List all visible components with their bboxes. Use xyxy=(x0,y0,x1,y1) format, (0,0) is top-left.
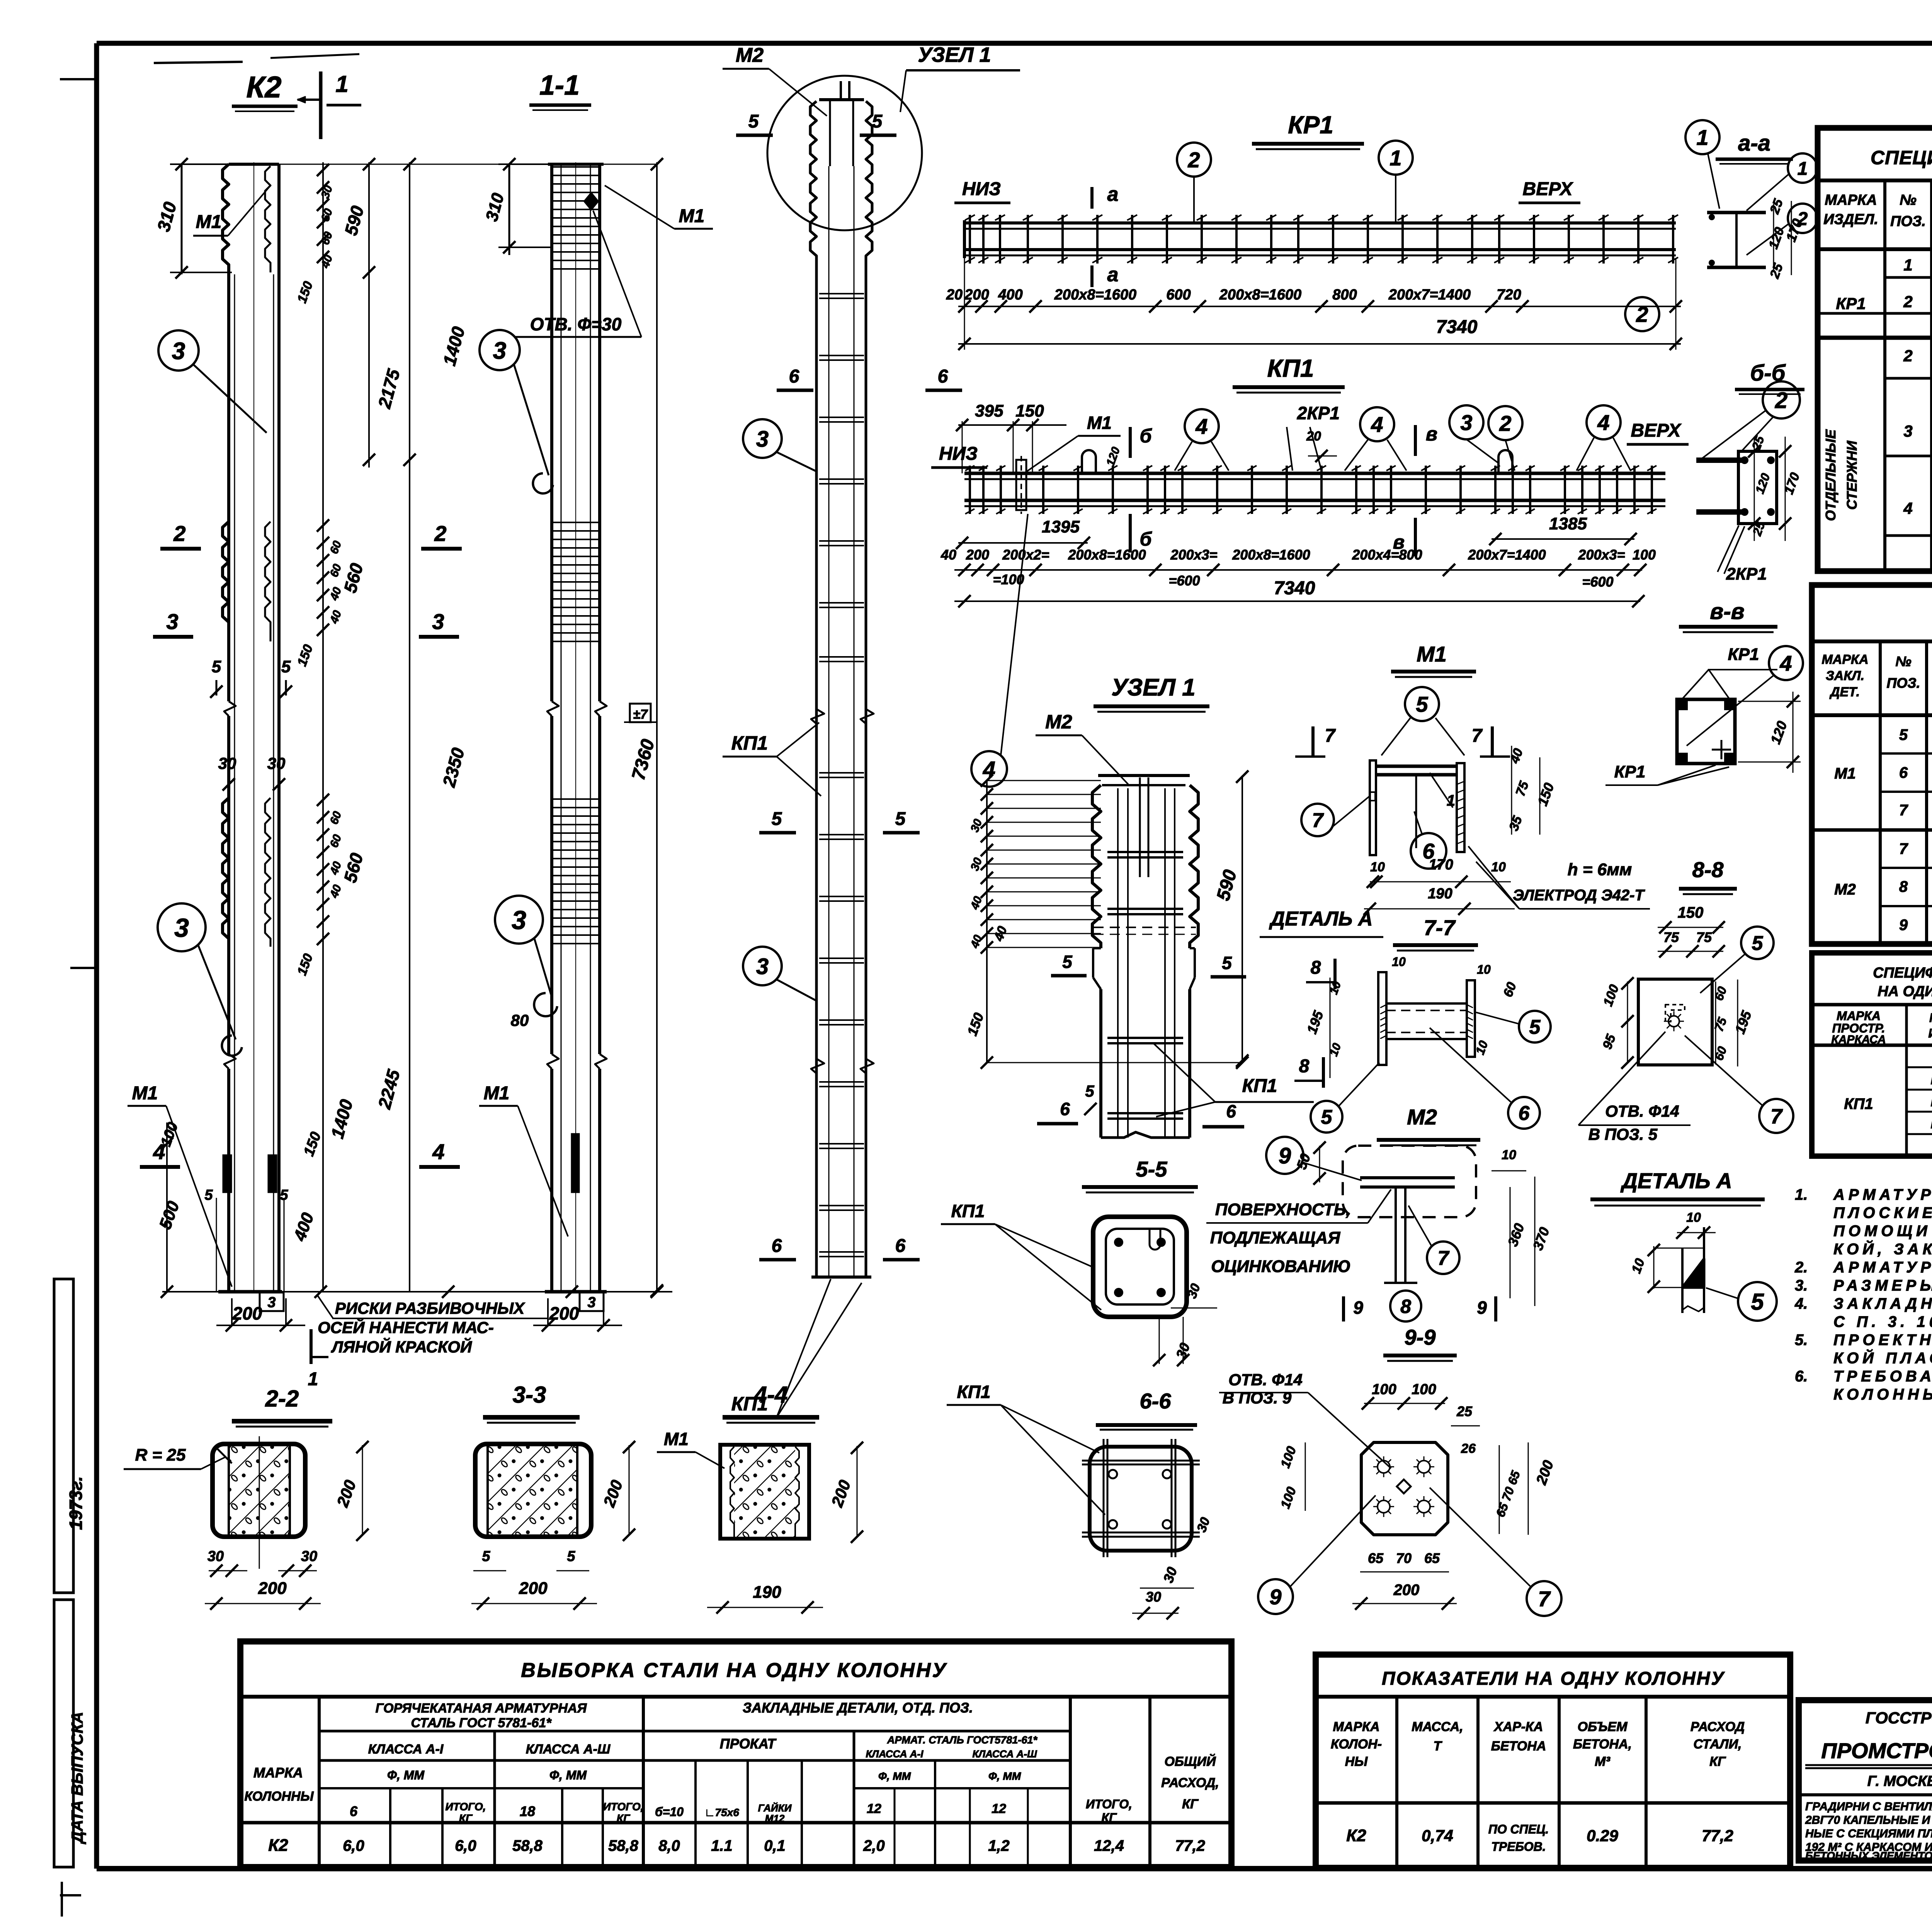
svg-text:=600: =600 xyxy=(1582,574,1613,590)
svg-text:4: 4 xyxy=(1779,651,1792,675)
svg-text:6: 6 xyxy=(772,1236,782,1256)
svg-text:МАРКА: МАРКА xyxy=(1929,1011,1932,1025)
svg-text:4: 4 xyxy=(1371,412,1383,437)
svg-text:3.: 3. xyxy=(1795,1277,1808,1294)
svg-text:СТАЛЬ ГОСТ 5781-61*: СТАЛЬ ГОСТ 5781-61* xyxy=(411,1716,552,1730)
svg-text:ПРОЕКТНУЮ ТОЛЩИНУ ЗАЩИТНЫХ СЛО: ПРОЕКТНУЮ ТОЛЩИНУ ЗАЩИТНЫХ СЛОЕВ БЕТОНА … xyxy=(1833,1332,1932,1349)
svg-text:3: 3 xyxy=(756,954,769,979)
svg-text:3-3: 3-3 xyxy=(513,1382,546,1408)
svg-text:М1: М1 xyxy=(1834,765,1856,782)
svg-text:КР1: КР1 xyxy=(1288,111,1333,139)
svg-text:НА ОДИН ПРОСТРАНСТВЕННЫЙ КАРКА: НА ОДИН ПРОСТРАНСТВЕННЫЙ КАРКАС xyxy=(1878,982,1932,1000)
svg-text:5: 5 xyxy=(1321,1106,1333,1129)
svg-text:6: 6 xyxy=(938,366,948,387)
svg-text:С П. 3. 10 ПОЯСНИТЕЛЬНОЙ ЗАПИС: С П. 3. 10 ПОЯСНИТЕЛЬНОЙ ЗАПИСКИ. xyxy=(1833,1312,1932,1330)
svg-text:МАРКА: МАРКА xyxy=(1825,192,1877,208)
svg-text:ВЫБОРКА СТАЛИ НА ОДНУ КОЛОННУ: ВЫБОРКА СТАЛИ НА ОДНУ КОЛОННУ xyxy=(521,1659,947,1682)
svg-text:ПОЗ.: ПОЗ. xyxy=(1890,213,1926,230)
svg-text:8: 8 xyxy=(1899,878,1908,895)
svg-text:8: 8 xyxy=(1400,1296,1411,1317)
svg-text:3: 3 xyxy=(432,609,444,634)
svg-text:77,2: 77,2 xyxy=(1175,1837,1205,1854)
svg-text:Ф, ММ: Ф, ММ xyxy=(549,1768,587,1782)
svg-text:АРМАТ. СТАЛЬ ГОСТ5781-61*: АРМАТ. СТАЛЬ ГОСТ5781-61* xyxy=(887,1734,1037,1746)
svg-text:М1: М1 xyxy=(196,212,222,232)
svg-text:КП1: КП1 xyxy=(1844,1095,1873,1112)
svg-text:ПО СПЕЦ.: ПО СПЕЦ. xyxy=(1488,1822,1549,1836)
svg-text:БЕТОННЫХ ЭЛЕМЕНТОВ: БЕТОННЫХ ЭЛЕМЕНТОВ xyxy=(1805,1850,1932,1862)
svg-text:1,2: 1,2 xyxy=(988,1837,1010,1854)
svg-text:6: 6 xyxy=(1519,1102,1530,1125)
svg-text:7-7: 7-7 xyxy=(1424,915,1456,940)
svg-text:9: 9 xyxy=(1269,1585,1281,1609)
svg-text:ПОВЕРХНОСТЬ,: ПОВЕРХНОСТЬ, xyxy=(1215,1200,1350,1219)
svg-text:ПЛОСКИЕ КАРКАСЫ-ТОЧЕЧНОЙ СВАРК: ПЛОСКИЕ КАРКАСЫ-ТОЧЕЧНОЙ СВАРКОЙ, ПРОСТР… xyxy=(1833,1203,1932,1221)
svg-text:7: 7 xyxy=(1325,726,1336,746)
svg-text:ПОЗ.3: ПОЗ.3 xyxy=(1930,1094,1932,1109)
svg-text:200х3=: 200х3= xyxy=(1170,547,1217,563)
svg-text:10: 10 xyxy=(1686,1210,1701,1225)
svg-text:М1: М1 xyxy=(484,1083,510,1104)
svg-text:6.: 6. xyxy=(1795,1368,1808,1385)
svg-text:9: 9 xyxy=(1899,917,1908,934)
svg-text:БЕТОНА: БЕТОНА xyxy=(1491,1739,1546,1753)
svg-text:ПОМОЩИ СВАРОЧНЫХ КЛЕЩЕЙ, ЗАКЛА: ПОМОЩИ СВАРОЧНЫХ КЛЕЩЕЙ, ЗАКЛАДНУЮ ДЕТАЛ… xyxy=(1833,1221,1932,1240)
svg-text:3: 3 xyxy=(1903,422,1912,440)
svg-text:7340: 7340 xyxy=(1274,578,1315,599)
svg-text:МАРКА: МАРКА xyxy=(1333,1719,1379,1734)
svg-text:a: a xyxy=(1107,183,1119,206)
svg-text:20: 20 xyxy=(1306,429,1321,444)
svg-text:б=10: б=10 xyxy=(655,1805,684,1819)
svg-text:6,0: 6,0 xyxy=(455,1837,476,1854)
svg-text:1: 1 xyxy=(1389,146,1401,170)
svg-text:в-в: в-в xyxy=(1710,599,1744,624)
svg-text:КГ: КГ xyxy=(1709,1754,1726,1769)
svg-text:7: 7 xyxy=(1312,810,1324,832)
svg-text:АРМАТУРНЫЕ ИЗДЕЛИЯ ДОЛЖНЫ ОТВЕ: АРМАТУРНЫЕ ИЗДЕЛИЯ ДОЛЖНЫ ОТВЕЧАТЬ ТРЕБО… xyxy=(1833,1259,1932,1276)
svg-text:М2: М2 xyxy=(1834,881,1856,898)
svg-text:КОЙ ПЛАСТМАССОВЫХ ИЛИ БЕТОННЫХ: КОЙ ПЛАСТМАССОВЫХ ИЛИ БЕТОННЫХ ФИКСАТОРО… xyxy=(1833,1349,1932,1367)
svg-text:5: 5 xyxy=(772,809,782,829)
svg-text:АРМАТУРНЫЕ ИЗДЕЛИЯ ИЗГОТОВЛЯТЬ: АРМАТУРНЫЕ ИЗДЕЛИЯ ИЗГОТОВЛЯТЬ В СООТВЕТ… xyxy=(1833,1186,1932,1203)
svg-text:12,4: 12,4 xyxy=(1094,1837,1124,1854)
svg-text:Г. МОСКВА 1973 Г.: Г. МОСКВА 1973 Г. xyxy=(1867,1773,1932,1789)
svg-text:В ПОЗ. 5: В ПОЗ. 5 xyxy=(1588,1125,1658,1143)
svg-text:2,0: 2,0 xyxy=(863,1837,885,1854)
svg-text:190: 190 xyxy=(753,1583,781,1602)
svg-text:ПОЗ.4: ПОЗ.4 xyxy=(1930,1116,1932,1131)
svg-text:8: 8 xyxy=(1299,1056,1310,1077)
svg-text:9: 9 xyxy=(1353,1298,1363,1318)
svg-text:80: 80 xyxy=(511,1011,529,1029)
svg-text:2КР1: 2КР1 xyxy=(1297,403,1340,423)
svg-text:0,1: 0,1 xyxy=(764,1837,786,1854)
svg-text:КАРКАСА: КАРКАСА xyxy=(1831,1033,1886,1046)
svg-text:5: 5 xyxy=(1529,1016,1541,1039)
svg-text:200х8=1600: 200х8=1600 xyxy=(1232,547,1310,563)
svg-text:25: 25 xyxy=(1456,1403,1473,1419)
svg-text:4: 4 xyxy=(432,1139,444,1164)
svg-text:КЛАССА А-Ш: КЛАССА А-Ш xyxy=(526,1742,611,1757)
svg-text:2: 2 xyxy=(1797,209,1808,229)
svg-text:200х4=800: 200х4=800 xyxy=(1352,547,1422,563)
svg-text:5.: 5. xyxy=(1795,1332,1808,1349)
svg-text:СТАЛИ,: СТАЛИ, xyxy=(1694,1737,1742,1752)
svg-text:5: 5 xyxy=(748,111,759,132)
svg-text:65: 65 xyxy=(1368,1550,1384,1566)
svg-text:1395: 1395 xyxy=(1042,517,1080,536)
svg-text:0.29: 0.29 xyxy=(1587,1827,1618,1845)
svg-text:ВЕРХ: ВЕРХ xyxy=(1523,179,1574,199)
svg-text:30: 30 xyxy=(301,1548,317,1565)
svg-text:ДЕТАЛЬ А: ДЕТАЛЬ А xyxy=(1620,1168,1732,1193)
svg-text:в: в xyxy=(1426,423,1437,445)
svg-text:КР1: КР1 xyxy=(1728,645,1759,664)
svg-text:190: 190 xyxy=(1428,886,1452,902)
svg-text:7: 7 xyxy=(1899,840,1908,857)
svg-text:400: 400 xyxy=(998,287,1022,303)
svg-text:5: 5 xyxy=(1899,726,1908,743)
svg-text:6: 6 xyxy=(1899,764,1908,781)
svg-text:ДЕТАЛЬ А: ДЕТАЛЬ А xyxy=(1269,908,1373,930)
svg-text:75: 75 xyxy=(1663,929,1679,945)
svg-text:ПРОМСТРОЙПРОЕКТ: ПРОМСТРОЙПРОЕКТ xyxy=(1821,1738,1932,1763)
svg-text:200х8=1600: 200х8=1600 xyxy=(1054,287,1136,303)
svg-text:СПЕЦИФИКАЦИЯ И ВЫБОРКА СТАЛИ Н: СПЕЦИФИКАЦИЯ И ВЫБОРКА СТАЛИ НА ОДНО АРМ… xyxy=(1871,147,1932,168)
svg-text:Ф, ММ: Ф, ММ xyxy=(878,1770,911,1782)
svg-text:№: № xyxy=(1895,653,1911,669)
svg-text:1.: 1. xyxy=(1795,1186,1808,1203)
svg-text:7: 7 xyxy=(1538,1587,1551,1611)
svg-text:a: a xyxy=(1107,264,1119,286)
svg-text:10: 10 xyxy=(1477,963,1491,976)
svg-text:МАРКА: МАРКА xyxy=(253,1765,303,1781)
svg-text:2: 2 xyxy=(1499,411,1511,435)
svg-text:4: 4 xyxy=(1903,499,1912,517)
svg-text:НЫ: НЫ xyxy=(1345,1754,1368,1769)
svg-text:200х8=1600: 200х8=1600 xyxy=(1068,547,1146,563)
svg-text:ИЗДЕЛ.: ИЗДЕЛ. xyxy=(1928,1026,1932,1040)
svg-text:КЛАССА А-I: КЛАССА А-I xyxy=(368,1742,444,1757)
svg-text:58,8: 58,8 xyxy=(608,1837,639,1854)
svg-text:СПЕЦИФИКАЦИЯ АРМАТУРНЫХ ИЗДЕЛИ: СПЕЦИФИКАЦИЯ АРМАТУРНЫХ ИЗДЕЛИЙ xyxy=(1873,964,1932,981)
svg-text:9: 9 xyxy=(1477,1298,1487,1318)
svg-text:5: 5 xyxy=(281,657,291,676)
svg-text:ИЗДЕЛ.: ИЗДЕЛ. xyxy=(1823,211,1878,228)
svg-text:4-4: 4-4 xyxy=(754,1382,788,1408)
svg-text:720: 720 xyxy=(1497,287,1521,303)
svg-text:5: 5 xyxy=(1416,692,1428,716)
svg-text:5: 5 xyxy=(1222,953,1232,973)
svg-text:РИСКИ РАЗБИВОЧНЫХ: РИСКИ РАЗБИВОЧНЫХ xyxy=(335,1299,526,1317)
svg-text:КП1: КП1 xyxy=(957,1382,991,1402)
svg-text:М1: М1 xyxy=(664,1429,689,1449)
svg-text:РАСХОД: РАСХОД xyxy=(1690,1719,1745,1734)
svg-text:ГОРЯЧЕКАТАНАЯ АРМАТУРНАЯ: ГОРЯЧЕКАТАНАЯ АРМАТУРНАЯ xyxy=(376,1701,587,1716)
svg-text:±7: ±7 xyxy=(633,707,648,722)
svg-text:10: 10 xyxy=(1392,955,1406,969)
svg-text:1385: 1385 xyxy=(1549,514,1587,533)
svg-text:УЗЕЛ 1: УЗЕЛ 1 xyxy=(918,43,991,66)
svg-text:ПОДЛЕЖАЩАЯ: ПОДЛЕЖАЩАЯ xyxy=(1210,1228,1340,1247)
svg-text:100: 100 xyxy=(1412,1381,1436,1398)
svg-text:ОТДЕЛЬНЫЕ: ОТДЕЛЬНЫЕ xyxy=(1823,429,1838,521)
svg-text:ОБЩИЙ: ОБЩИЙ xyxy=(1164,1754,1216,1769)
svg-text:ПОКАЗАТЕЛИ НА ОДНУ КОЛОННУ: ПОКАЗАТЕЛИ НА ОДНУ КОЛОННУ xyxy=(1382,1668,1725,1689)
svg-text:7: 7 xyxy=(1770,1105,1783,1128)
svg-text:ЛЯНОЙ КРАСКОЙ: ЛЯНОЙ КРАСКОЙ xyxy=(331,1337,472,1356)
svg-text:10: 10 xyxy=(1491,860,1506,874)
svg-text:∟75х6: ∟75х6 xyxy=(704,1806,739,1818)
svg-text:3: 3 xyxy=(756,427,769,452)
svg-text:Т: Т xyxy=(1434,1739,1443,1753)
svg-text:М1: М1 xyxy=(132,1083,158,1104)
svg-text:100: 100 xyxy=(1372,1381,1396,1398)
svg-text:150: 150 xyxy=(1678,904,1704,921)
svg-text:ИТОГО,: ИТОГО, xyxy=(603,1801,643,1813)
svg-text:800: 800 xyxy=(1332,287,1357,303)
svg-text:ЗАКЛАДНУЮ ДЕТАЛЬ М2 МЕТАЛЛИЗИР: ЗАКЛАДНУЮ ДЕТАЛЬ М2 МЕТАЛЛИЗИРОВАТЬ ЦИНК… xyxy=(1833,1295,1932,1312)
svg-text:6: 6 xyxy=(1060,1099,1070,1119)
svg-text:3: 3 xyxy=(512,905,526,935)
svg-text:5: 5 xyxy=(212,657,221,676)
svg-text:6: 6 xyxy=(789,366,799,387)
svg-text:5: 5 xyxy=(482,1548,490,1565)
svg-text:5: 5 xyxy=(872,111,883,132)
svg-text:К2: К2 xyxy=(1346,1826,1366,1845)
svg-text:9-9: 9-9 xyxy=(1405,1325,1436,1349)
svg-text:КР1: КР1 xyxy=(1836,294,1866,313)
svg-text:М1: М1 xyxy=(1087,413,1112,433)
svg-text:12: 12 xyxy=(992,1801,1006,1816)
svg-text:30: 30 xyxy=(1146,1589,1161,1605)
svg-text:б: б xyxy=(1140,425,1153,447)
svg-text:1: 1 xyxy=(1798,158,1808,179)
svg-text:=600: =600 xyxy=(1168,573,1200,588)
svg-text:1: 1 xyxy=(335,71,348,97)
svg-text:2КР1: 2КР1 xyxy=(1726,565,1767,583)
svg-text:5: 5 xyxy=(567,1548,575,1565)
svg-text:58,8: 58,8 xyxy=(512,1837,543,1854)
svg-text:КЛАССА А-I: КЛАССА А-I xyxy=(866,1748,924,1760)
svg-text:2: 2 xyxy=(1903,347,1912,365)
svg-text:М³: М³ xyxy=(1595,1754,1611,1769)
svg-text:ИТОГО,: ИТОГО, xyxy=(445,1801,486,1813)
svg-text:170: 170 xyxy=(1429,857,1453,873)
svg-text:5: 5 xyxy=(895,809,906,829)
svg-text:КОЛОН-: КОЛОН- xyxy=(1331,1737,1382,1752)
svg-text:4: 4 xyxy=(1195,414,1207,439)
svg-text:2: 2 xyxy=(1775,388,1787,413)
svg-text:М2: М2 xyxy=(1045,711,1072,733)
svg-text:ОСЕЙ НАНЕСТИ МАС-: ОСЕЙ НАНЕСТИ МАС- xyxy=(318,1318,494,1337)
svg-text:МАРКА: МАРКА xyxy=(1821,652,1868,667)
svg-text:К2: К2 xyxy=(268,1836,288,1855)
svg-text:КОЛОННЫ СМ. В ПОЯСНИТЕЛЬНОЙ ЗА: КОЛОННЫ СМ. В ПОЯСНИТЕЛЬНОЙ ЗАПИСКЕ. xyxy=(1833,1385,1932,1403)
svg-text:3: 3 xyxy=(172,338,185,364)
svg-text:40: 40 xyxy=(940,547,956,563)
svg-text:0,74: 0,74 xyxy=(1422,1827,1453,1845)
svg-text:3: 3 xyxy=(267,1294,276,1311)
svg-text:ОТВ. Ф14: ОТВ. Ф14 xyxy=(1228,1371,1303,1389)
svg-text:70: 70 xyxy=(1396,1550,1412,1566)
svg-text:ИТОГО,: ИТОГО, xyxy=(1086,1797,1132,1811)
svg-text:КП1: КП1 xyxy=(1267,354,1314,382)
svg-text:77,2: 77,2 xyxy=(1702,1827,1733,1845)
svg-text:5: 5 xyxy=(204,1187,213,1203)
svg-text:М1: М1 xyxy=(679,206,705,226)
svg-text:Ф, ММ: Ф, ММ xyxy=(387,1768,425,1782)
svg-text:МАРКА: МАРКА xyxy=(1837,1009,1881,1023)
svg-text:КП1: КП1 xyxy=(951,1201,985,1221)
svg-text:2: 2 xyxy=(434,521,446,546)
svg-text:a-a: a-a xyxy=(1738,131,1770,156)
svg-text:150: 150 xyxy=(1015,401,1044,420)
svg-text:R = 25: R = 25 xyxy=(135,1446,186,1464)
svg-text:3: 3 xyxy=(174,913,189,942)
svg-text:7: 7 xyxy=(1438,1247,1450,1270)
svg-text:КР1: КР1 xyxy=(1614,762,1646,781)
svg-text:ТРЕБОВ.: ТРЕБОВ. xyxy=(1491,1840,1546,1854)
svg-text:УЗЕЛ 1: УЗЕЛ 1 xyxy=(1111,674,1195,701)
svg-text:200: 200 xyxy=(966,547,989,563)
svg-text:6: 6 xyxy=(350,1803,358,1819)
svg-text:3: 3 xyxy=(493,337,506,364)
svg-text:75: 75 xyxy=(1696,929,1712,945)
svg-text:В ПОЗ. 9: В ПОЗ. 9 xyxy=(1223,1389,1292,1407)
svg-text:КГ: КГ xyxy=(1182,1797,1199,1811)
svg-text:20: 20 xyxy=(946,287,963,303)
svg-text:ЭЛЕКТРОД Э42-Т: ЭЛЕКТРОД Э42-Т xyxy=(1513,887,1645,904)
svg-text:Ф, ММ: Ф, ММ xyxy=(988,1770,1021,1782)
svg-text:ДАТА ВЫПУСКА: ДАТА ВЫПУСКА xyxy=(68,1712,86,1844)
svg-text:8-8: 8-8 xyxy=(1692,857,1724,882)
svg-text:2ВГ70 КАПЕЛЬНЫЕ И БРЫЗГАЛЬ-: 2ВГ70 КАПЕЛЬНЫЕ И БРЫЗГАЛЬ- xyxy=(1805,1814,1932,1827)
svg-text:2.: 2. xyxy=(1794,1259,1808,1276)
svg-text:18: 18 xyxy=(520,1803,535,1819)
svg-text:26: 26 xyxy=(1461,1441,1476,1456)
svg-text:1: 1 xyxy=(308,1369,318,1389)
svg-text:5: 5 xyxy=(1752,932,1764,955)
svg-text:ВЕРХ: ВЕРХ xyxy=(1631,420,1682,441)
svg-text:НИЗ: НИЗ xyxy=(939,444,978,464)
svg-text:200х3=: 200х3= xyxy=(1578,547,1625,563)
svg-text:2: 2 xyxy=(1187,148,1200,172)
svg-text:7: 7 xyxy=(1472,726,1483,746)
svg-text:МАССА,: МАССА, xyxy=(1412,1719,1463,1734)
svg-text:5-5: 5-5 xyxy=(1136,1157,1168,1181)
svg-text:7340: 7340 xyxy=(1436,317,1478,337)
svg-text:30: 30 xyxy=(218,754,236,772)
svg-text:8,0: 8,0 xyxy=(658,1837,680,1854)
svg-text:3: 3 xyxy=(1460,410,1472,435)
svg-text:200х8=1600: 200х8=1600 xyxy=(1219,287,1301,303)
svg-text:1973г.: 1973г. xyxy=(66,1476,86,1530)
svg-text:2-2: 2-2 xyxy=(265,1386,299,1412)
svg-text:600: 600 xyxy=(1166,287,1190,303)
svg-text:ОЦИНКОВАНИЮ: ОЦИНКОВАНИЮ xyxy=(1211,1257,1351,1276)
svg-text:200: 200 xyxy=(964,287,989,303)
svg-text:395: 395 xyxy=(975,401,1003,420)
svg-text:10: 10 xyxy=(1502,1148,1516,1162)
svg-text:200х7=1400: 200х7=1400 xyxy=(1468,547,1546,563)
svg-text:ГОССТРОЙ СССР: ГОССТРОЙ СССР xyxy=(1866,1708,1932,1727)
svg-text:6: 6 xyxy=(895,1236,906,1256)
svg-text:М1: М1 xyxy=(1417,642,1447,666)
svg-text:КП1: КП1 xyxy=(731,732,768,754)
svg-text:200: 200 xyxy=(519,1579,548,1598)
svg-text:8: 8 xyxy=(1311,957,1321,978)
svg-text:2: 2 xyxy=(173,521,185,546)
svg-text:4: 4 xyxy=(1597,410,1609,435)
svg-text:ЗАКЛАДНЫЕ ДЕТАЛИ, ОТД. ПОЗ.: ЗАКЛАДНЫЕ ДЕТАЛИ, ОТД. ПОЗ. xyxy=(743,1700,973,1716)
svg-text:ПОЗ.: ПОЗ. xyxy=(1886,675,1920,691)
svg-text:КП1: КП1 xyxy=(1242,1076,1277,1096)
svg-text:1: 1 xyxy=(1447,792,1455,809)
svg-text:5: 5 xyxy=(1085,1082,1094,1100)
svg-text:4.: 4. xyxy=(1794,1295,1808,1312)
svg-text:200: 200 xyxy=(1393,1582,1420,1599)
svg-text:ПРОКАТ: ПРОКАТ xyxy=(720,1736,777,1752)
svg-text:ЗАКЛ.: ЗАКЛ. xyxy=(1826,668,1864,683)
svg-text:№: № xyxy=(1900,192,1917,208)
svg-text:ГРАДИРНИ С ВЕНТИЛЯТОРАМИ: ГРАДИРНИ С ВЕНТИЛЯТОРАМИ xyxy=(1805,1800,1932,1813)
svg-text:7: 7 xyxy=(1899,802,1908,819)
svg-text:2: 2 xyxy=(1903,293,1912,311)
svg-text:РАЗМЕРЫ КАРКАСОВ ДАНЫ ПО ОСЯМ: РАЗМЕРЫ КАРКАСОВ ДАНЫ ПО ОСЯМ СТЕРЖНЕЙ. xyxy=(1833,1276,1932,1294)
svg-text:НИЗ: НИЗ xyxy=(962,179,1001,199)
svg-text:КОЛОННЫ: КОЛОННЫ xyxy=(244,1789,314,1804)
svg-text:ОТВ. Ф=30: ОТВ. Ф=30 xyxy=(530,314,622,334)
svg-text:5: 5 xyxy=(1062,952,1073,972)
svg-text:5: 5 xyxy=(1751,1289,1764,1315)
svg-text:СТЕРЖНИ: СТЕРЖНИ xyxy=(1844,440,1860,510)
svg-text:1: 1 xyxy=(1696,125,1708,150)
svg-text:РАСХОД,: РАСХОД, xyxy=(1161,1776,1219,1790)
svg-text:10: 10 xyxy=(1370,860,1385,874)
svg-text:ХАР-КА: ХАР-КА xyxy=(1493,1719,1543,1734)
svg-text:9: 9 xyxy=(1279,1143,1291,1168)
svg-text:30: 30 xyxy=(267,754,286,772)
svg-text:М2: М2 xyxy=(1407,1105,1437,1129)
svg-text:12: 12 xyxy=(867,1801,881,1816)
svg-text:6,0: 6,0 xyxy=(343,1837,364,1854)
svg-text:h = 6мм: h = 6мм xyxy=(1568,860,1632,879)
svg-text:3: 3 xyxy=(166,609,178,634)
svg-text:200: 200 xyxy=(258,1579,287,1598)
svg-text:1-1: 1-1 xyxy=(539,70,580,101)
svg-text:100: 100 xyxy=(1633,547,1656,563)
svg-text:ПОЗ.2: ПОЗ.2 xyxy=(1930,1071,1932,1087)
svg-text:1: 1 xyxy=(1903,256,1912,274)
svg-text:К2: К2 xyxy=(246,70,281,104)
svg-text:6: 6 xyxy=(1226,1101,1236,1121)
svg-text:ГАЙКИ: ГАЙКИ xyxy=(758,1802,792,1814)
svg-text:200х7=1400: 200х7=1400 xyxy=(1388,287,1471,303)
svg-text:65: 65 xyxy=(1424,1550,1440,1566)
svg-text:ДЕТ.: ДЕТ. xyxy=(1829,685,1860,699)
svg-text:2: 2 xyxy=(1636,302,1648,327)
svg-text:30: 30 xyxy=(207,1548,224,1565)
svg-text:БЕТОНА,: БЕТОНА, xyxy=(1573,1737,1632,1752)
svg-text:ТРЕБОВАНИЯ К БЕТОНУ И СТАЛИ И: ТРЕБОВАНИЯ К БЕТОНУ И СТАЛИ И УКАЗАНИЯ П… xyxy=(1833,1368,1932,1385)
svg-text:ОТВ. Ф14: ОТВ. Ф14 xyxy=(1605,1102,1679,1120)
svg-text:ОБЪЕМ: ОБЪЕМ xyxy=(1578,1719,1628,1734)
svg-text:КОЙ, ЗАКЛАДНУЮ ДЕТАЛЬ М2-СВАРК: КОЙ, ЗАКЛАДНУЮ ДЕТАЛЬ М2-СВАРКОЙ ПОД ФЛЮ… xyxy=(1833,1240,1932,1258)
svg-text:200х2=: 200х2= xyxy=(1002,547,1049,563)
svg-text:6-6: 6-6 xyxy=(1140,1389,1172,1413)
